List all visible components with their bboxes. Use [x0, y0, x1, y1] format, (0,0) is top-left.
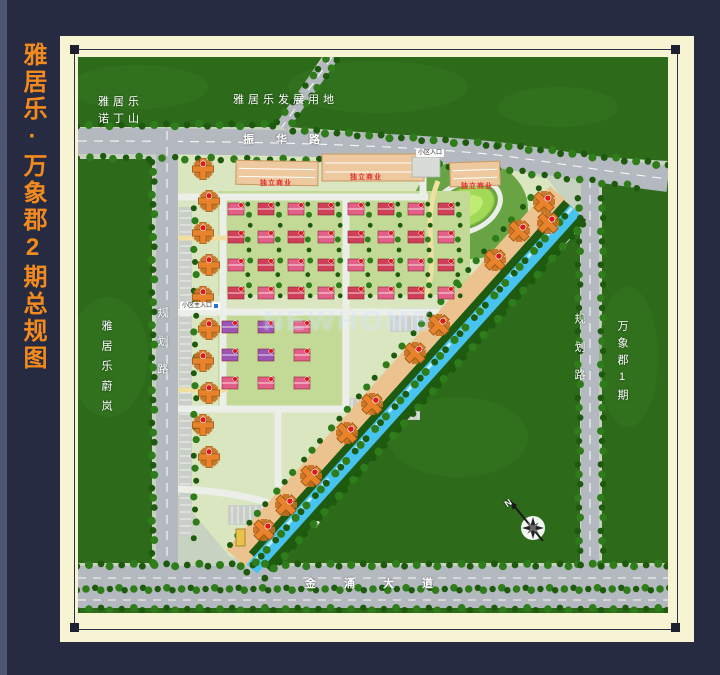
poster: 雅居乐·万象郡2期总规图 雅居乐 诺丁山 雅居乐发展用地 振华路 规划路 规划路… [0, 0, 720, 675]
frame-corner-icon [70, 45, 79, 54]
watermark: NEWHOME [263, 305, 433, 337]
label-commercial-3: 独立商业 [461, 181, 493, 191]
frame-corner-icon [70, 623, 79, 632]
label-main-entrance: 小区主入口 [180, 302, 220, 310]
site-plan-map[interactable]: 雅居乐 诺丁山 雅居乐发展用地 振华路 规划路 规划路 雅居乐蔚岚 万象郡1期 … [78, 57, 668, 613]
frame-corner-icon [671, 45, 680, 54]
label-commercial-2: 独立商业 [350, 172, 382, 182]
entrance-marker-icon [214, 304, 218, 308]
map-frame: 雅居乐 诺丁山 雅居乐发展用地 振华路 规划路 规划路 雅居乐蔚岚 万象郡1期 … [60, 36, 694, 642]
label-adjacent-northwest: 雅居乐 诺丁山 [98, 94, 143, 128]
plan-title: 雅居乐·万象郡2期总规图 [11, 42, 53, 622]
label-adjacent-east-phase1: 万象郡1期 [614, 320, 630, 406]
label-north-entrance: 小区入口 [416, 149, 444, 157]
label-jinyong-avenue: 金涌大道 [305, 575, 461, 591]
label-adjacent-west: 雅居乐蔚岚 [98, 320, 114, 420]
left-edge-strip [0, 0, 7, 675]
frame-corner-icon [671, 623, 680, 632]
label-development-land: 雅居乐发展用地 [233, 91, 338, 107]
label-zhenhua-road: 振华路 [243, 131, 342, 147]
label-commercial-1: 独立商业 [260, 178, 292, 188]
label-planning-road-right: 规划路 [571, 313, 587, 397]
label-planning-road-left: 规划路 [154, 307, 170, 391]
